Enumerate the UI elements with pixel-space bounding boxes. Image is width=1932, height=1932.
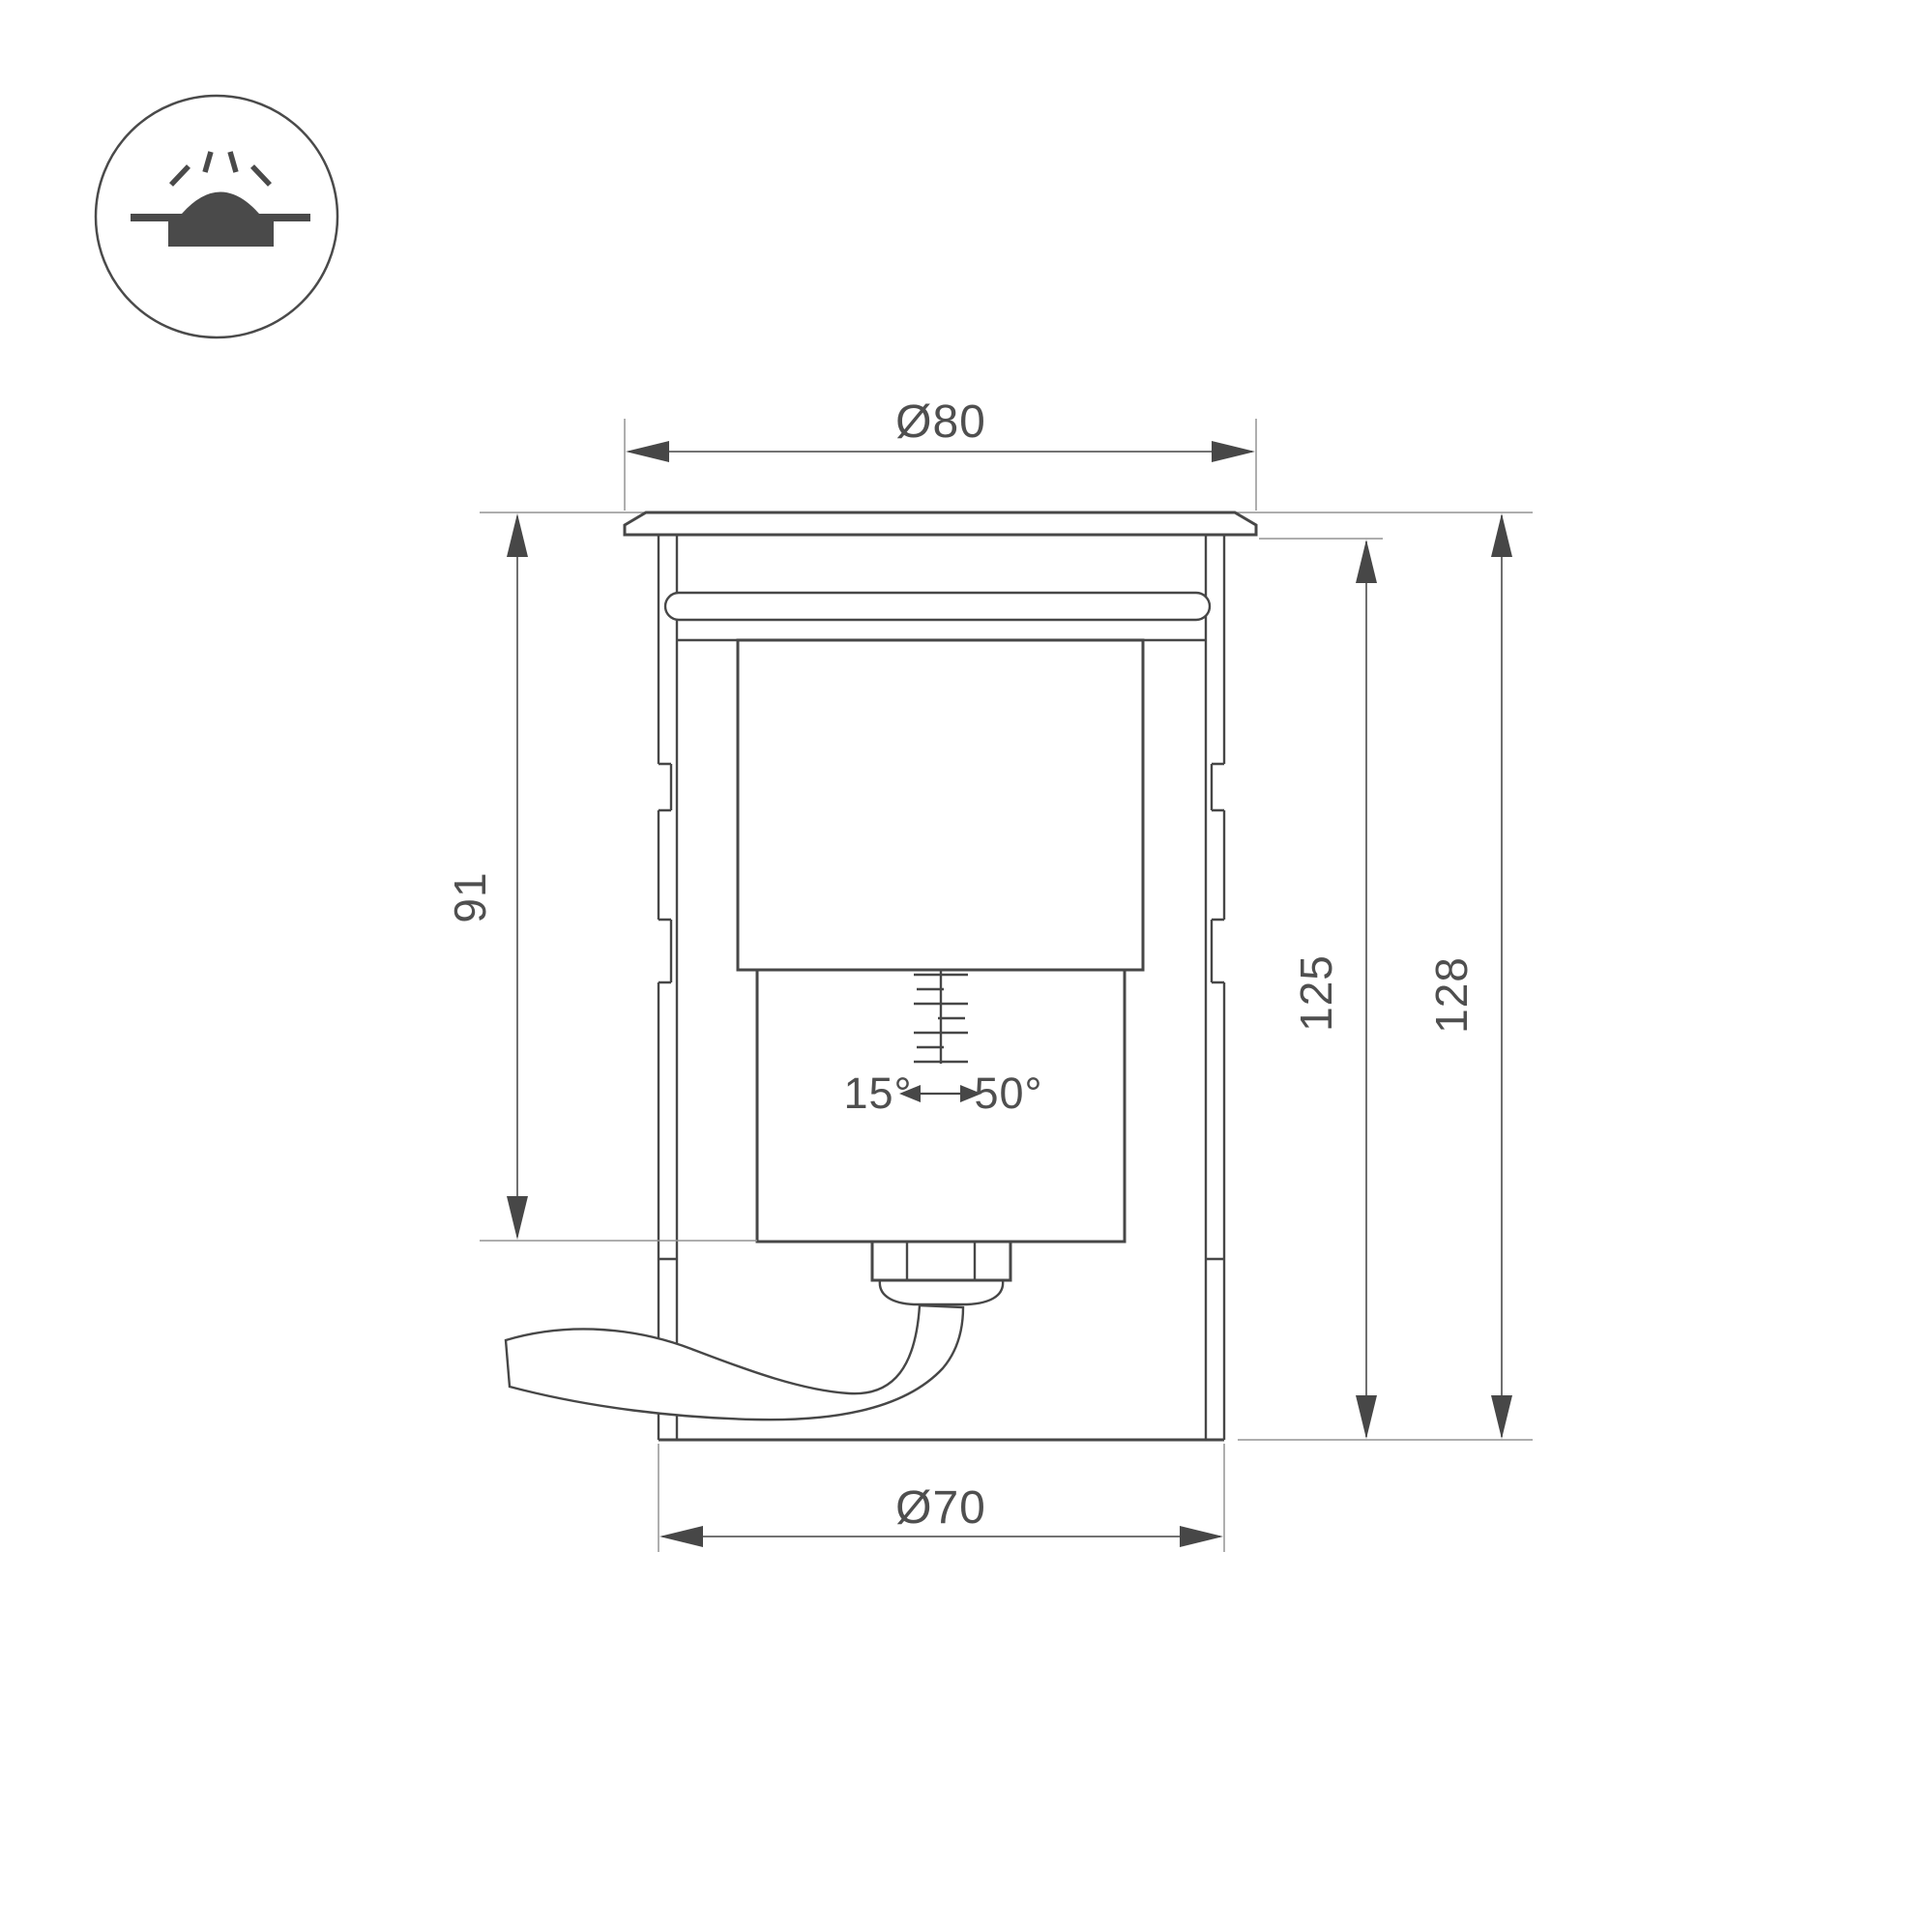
label-recess-depth: 91 <box>445 871 495 922</box>
flange <box>625 512 1256 535</box>
recessed-ground-light-icon <box>96 96 337 337</box>
icon-rays <box>171 152 270 185</box>
label-overall-height: 128 <box>1426 956 1477 1034</box>
dimension-overall-height: 128 <box>1238 513 1533 1440</box>
dimension-drawing: Ø80 91 125 128 Ø70 15° 50° <box>0 0 1932 1932</box>
retaining-clip <box>665 593 1210 620</box>
luminaire-body <box>506 512 1256 1440</box>
dimension-body-diameter: Ø70 <box>659 1444 1224 1552</box>
cable-gland <box>872 1242 1010 1304</box>
tube-wall-left-joints <box>659 764 677 1259</box>
tube-wall-right-joints <box>1206 764 1224 1259</box>
dimension-body-height: 125 <box>1259 539 1383 1439</box>
dimension-recess-depth: 91 <box>445 513 757 1241</box>
label-body-diameter: Ø70 <box>895 1482 986 1534</box>
icon-recessed-body <box>168 221 274 247</box>
dimension-flange-diameter: Ø80 <box>625 396 1256 511</box>
gland-dome <box>880 1280 1003 1304</box>
gland-nut <box>872 1242 1010 1280</box>
supply-cable <box>506 1305 963 1420</box>
label-tilt-min: 15° <box>843 1068 912 1118</box>
optic-housing <box>738 640 1143 970</box>
drawing-page: Ø80 91 125 128 Ø70 15° 50° <box>0 0 1932 1932</box>
icon-dome <box>182 192 259 215</box>
icon-ground-bar <box>131 214 310 221</box>
label-body-height: 125 <box>1291 954 1341 1032</box>
label-tilt-max: 50° <box>974 1068 1042 1118</box>
label-flange-diameter: Ø80 <box>895 396 986 448</box>
